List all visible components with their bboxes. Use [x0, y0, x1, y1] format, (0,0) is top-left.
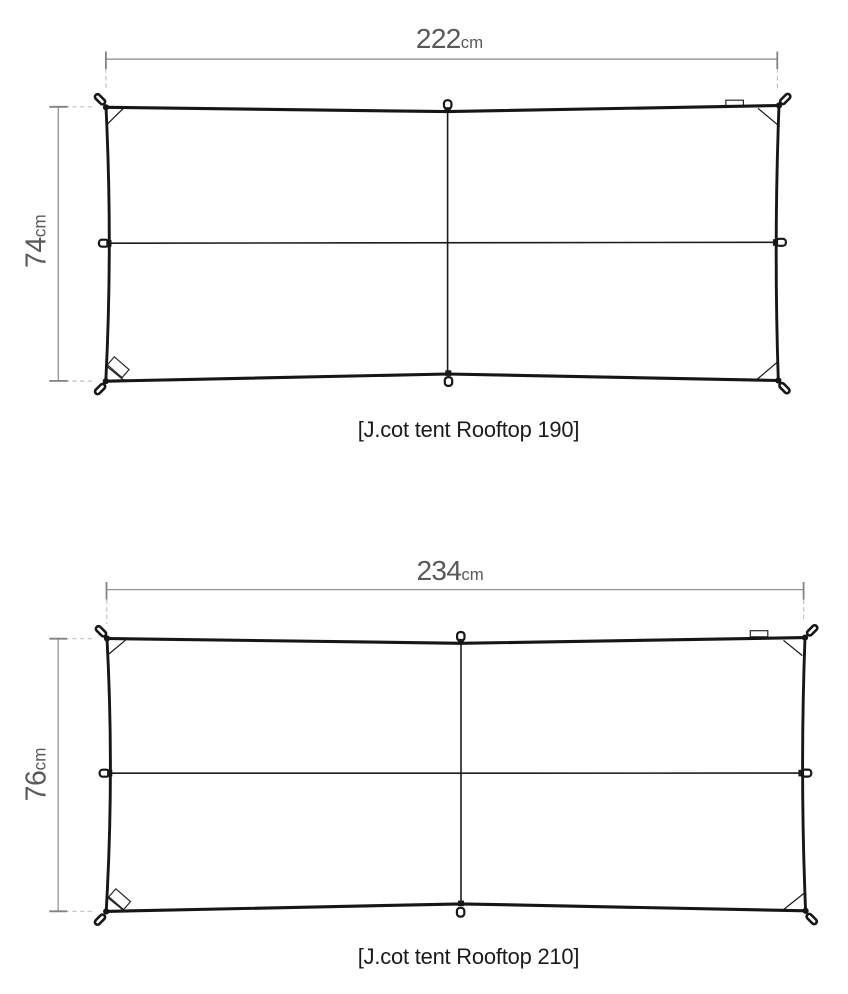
svg-text:[J.cot tent Rooftop 210]: [J.cot tent Rooftop 210]	[358, 944, 580, 969]
svg-text:74cm: 74cm	[20, 214, 52, 268]
svg-text:[J.cot tent Rooftop 190]: [J.cot tent Rooftop 190]	[358, 417, 580, 442]
svg-text:222cm: 222cm	[416, 23, 483, 54]
svg-text:234cm: 234cm	[416, 555, 483, 586]
svg-text:76cm: 76cm	[20, 748, 52, 802]
